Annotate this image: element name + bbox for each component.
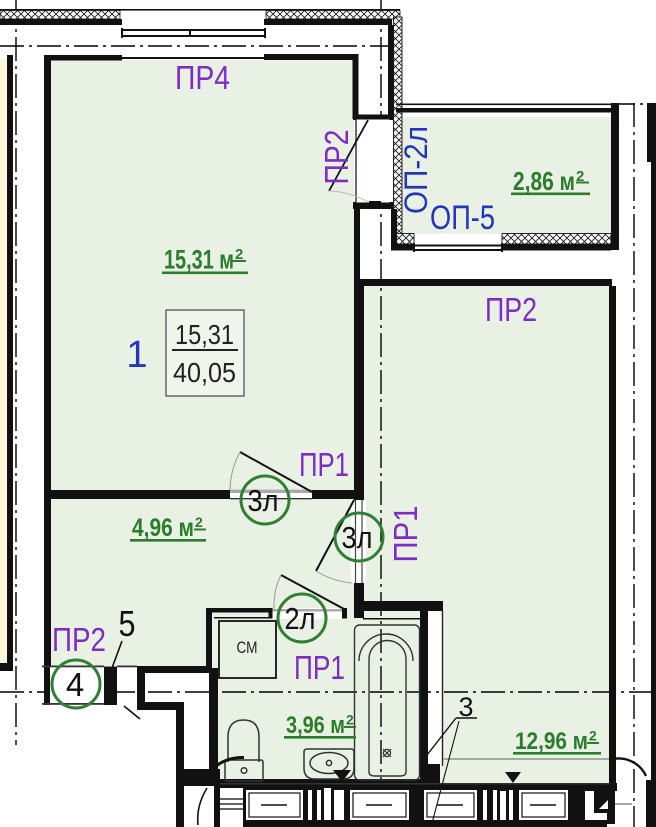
svg-text:1: 1 <box>126 334 147 376</box>
svg-text:2,86 м2: 2,86 м2 <box>513 166 584 196</box>
svg-text:2л: 2л <box>285 601 316 636</box>
svg-text:ПР1: ПР1 <box>387 506 424 563</box>
svg-text:ПР2: ПР2 <box>52 621 106 658</box>
svg-text:СМ: СМ <box>237 639 258 657</box>
svg-text:ПР2: ПР2 <box>485 291 537 328</box>
svg-text:3л: 3л <box>248 483 279 518</box>
svg-text:ПР1: ПР1 <box>294 649 345 686</box>
svg-text:12,96 м2: 12,96 м2 <box>515 728 597 756</box>
svg-text:ОП-2л: ОП-2л <box>398 126 434 214</box>
svg-text:ПР2: ПР2 <box>318 130 355 185</box>
svg-text:15,31: 15,31 <box>175 319 234 350</box>
svg-text:4,96 м2: 4,96 м2 <box>132 514 203 542</box>
svg-text:ПР1: ПР1 <box>299 446 349 483</box>
svg-text:40,05: 40,05 <box>173 357 236 388</box>
svg-text:3л: 3л <box>342 520 373 555</box>
svg-text:4: 4 <box>66 666 84 703</box>
svg-text:3,96 м2: 3,96 м2 <box>286 712 354 740</box>
svg-text:15,31 м2: 15,31 м2 <box>164 245 243 275</box>
svg-text:5: 5 <box>119 603 136 644</box>
svg-text:ПР4: ПР4 <box>175 59 230 96</box>
svg-text:ОП-5: ОП-5 <box>430 199 495 237</box>
